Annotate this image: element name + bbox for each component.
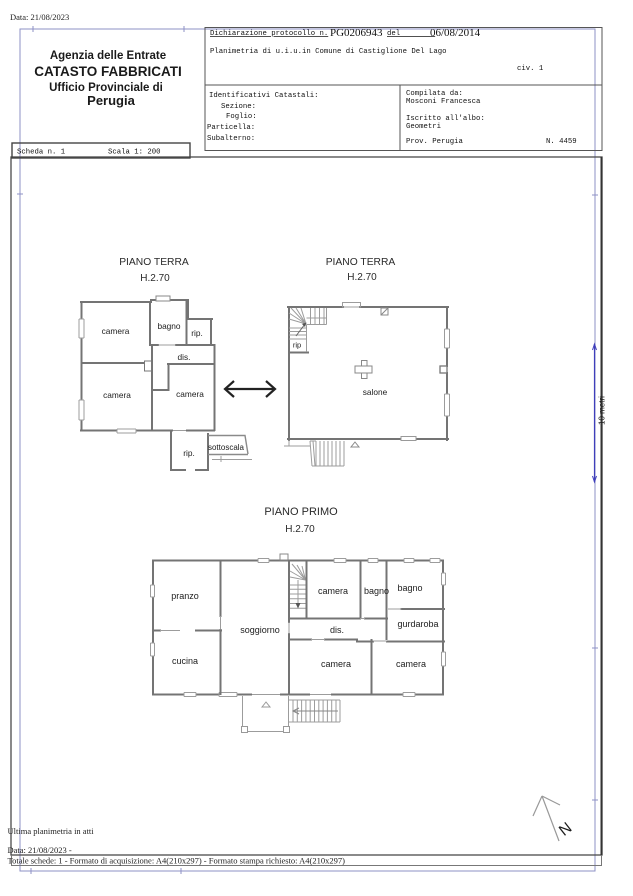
svg-text:Scala 1: 200: Scala 1: 200 xyxy=(108,149,161,157)
svg-text:PIANO PRIMO: PIANO PRIMO xyxy=(264,506,338,518)
svg-text:H.2.70: H.2.70 xyxy=(285,524,315,535)
svg-text:H.2.70: H.2.70 xyxy=(347,272,377,283)
svg-text:H.2.70: H.2.70 xyxy=(140,273,170,284)
svg-text:Data: 21/08/2023 -: Data: 21/08/2023 - xyxy=(8,845,72,855)
svg-text:Mosconi Francesca: Mosconi Francesca xyxy=(406,98,481,106)
svg-text:camera: camera xyxy=(396,659,426,669)
svg-text:bagno: bagno xyxy=(364,586,389,596)
svg-text:rip.: rip. xyxy=(191,328,203,338)
svg-text:rip: rip xyxy=(293,341,301,350)
svg-text:bagno: bagno xyxy=(397,583,422,593)
svg-text:PIANO TERRA: PIANO TERRA xyxy=(119,257,189,268)
svg-text:CATASTO FABBRICATI: CATASTO FABBRICATI xyxy=(34,64,182,79)
svg-text:Foglio:: Foglio: xyxy=(226,113,257,121)
svg-text:cucina: cucina xyxy=(172,656,198,666)
svg-text:PIANO TERRA: PIANO TERRA xyxy=(326,257,396,268)
svg-text:Sezione:: Sezione: xyxy=(221,103,256,111)
svg-text:del: del xyxy=(387,30,435,38)
svg-text:Totale schede: 1 - Formato d: Totale schede: 1 - Formato di acquisizio… xyxy=(8,856,346,866)
svg-text:gurdaroba: gurdaroba xyxy=(397,619,438,629)
svg-text:pranzo: pranzo xyxy=(171,591,199,601)
svg-text:Perugia: Perugia xyxy=(87,93,135,108)
svg-text:rip.: rip. xyxy=(183,448,195,458)
svg-text:Prov. Perugia: Prov. Perugia xyxy=(406,138,464,146)
svg-text:Identificativi Catastali:: Identificativi Catastali: xyxy=(209,92,318,100)
svg-text:Subalterno:: Subalterno: xyxy=(207,135,255,143)
svg-text:dis.: dis. xyxy=(330,625,344,635)
svg-text:Geometri: Geometri xyxy=(406,123,442,131)
svg-text:Agenzia delle Entrate: Agenzia delle Entrate xyxy=(50,50,166,62)
svg-text:civ. 1: civ. 1 xyxy=(517,65,544,73)
svg-text:PG0206943: PG0206943 xyxy=(330,27,383,39)
svg-text:06/08/2014: 06/08/2014 xyxy=(430,27,481,39)
svg-text:salone: salone xyxy=(363,387,388,397)
svg-text:Planimetria di u.i.u.in Comune: Planimetria di u.i.u.in Comune di Castig… xyxy=(210,48,446,56)
svg-text:Ultima planimetria in atti: Ultima planimetria in atti xyxy=(8,826,95,836)
svg-text:Dichiarazione protocollo n.: Dichiarazione protocollo n. xyxy=(210,30,328,38)
svg-text:camera: camera xyxy=(321,659,351,669)
svg-text:10 metri: 10 metri xyxy=(598,396,607,425)
svg-text:sottoscala: sottoscala xyxy=(208,443,245,452)
svg-text:Scheda n. 1: Scheda n. 1 xyxy=(17,149,66,157)
svg-text:soggiorno: soggiorno xyxy=(240,625,280,635)
svg-text:N. 4459: N. 4459 xyxy=(546,138,577,146)
svg-text:dis.: dis. xyxy=(178,352,191,362)
svg-text:Compilata da:: Compilata da: xyxy=(406,90,463,98)
svg-text:Particella:: Particella: xyxy=(207,124,255,132)
svg-text:camera: camera xyxy=(318,586,348,596)
svg-text:camera: camera xyxy=(103,390,131,400)
svg-text:bagno: bagno xyxy=(157,321,180,331)
svg-text:camera: camera xyxy=(102,326,130,336)
svg-text:Data: 21/08/2023: Data: 21/08/2023 xyxy=(10,12,69,22)
svg-text:Iscritto all'albo:: Iscritto all'albo: xyxy=(406,115,485,123)
svg-text:camera: camera xyxy=(176,389,204,399)
